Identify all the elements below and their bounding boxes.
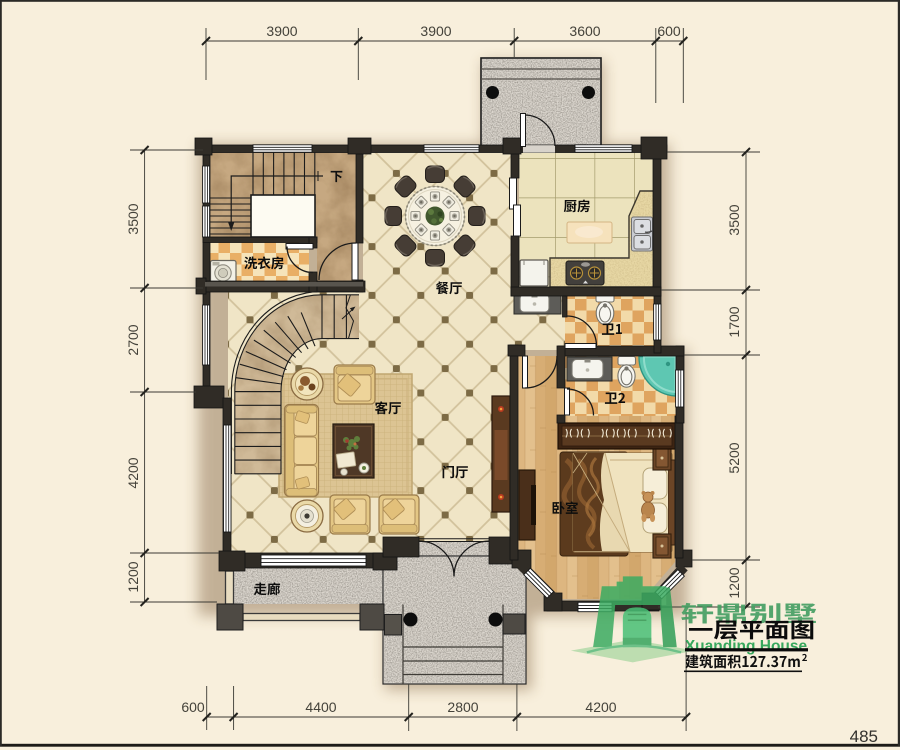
svg-text:485: 485 [850,727,878,746]
svg-text:1200: 1200 [726,567,742,598]
svg-text:2700: 2700 [125,324,141,355]
svg-text:4200: 4200 [125,457,141,488]
svg-text:3600: 3600 [569,23,600,39]
svg-text:600: 600 [657,23,681,39]
svg-text:1200: 1200 [125,561,141,592]
svg-text:1700: 1700 [726,306,742,337]
svg-text:5200: 5200 [726,442,742,473]
svg-text:2800: 2800 [447,699,478,715]
svg-text:4400: 4400 [305,699,336,715]
svg-text:3500: 3500 [726,204,742,235]
svg-text:4200: 4200 [585,699,616,715]
svg-text:600: 600 [181,699,205,715]
svg-text:3900: 3900 [420,23,451,39]
svg-text:Xuanding House: Xuanding House [685,638,808,655]
svg-text:3500: 3500 [125,203,141,234]
svg-text:3900: 3900 [266,23,297,39]
